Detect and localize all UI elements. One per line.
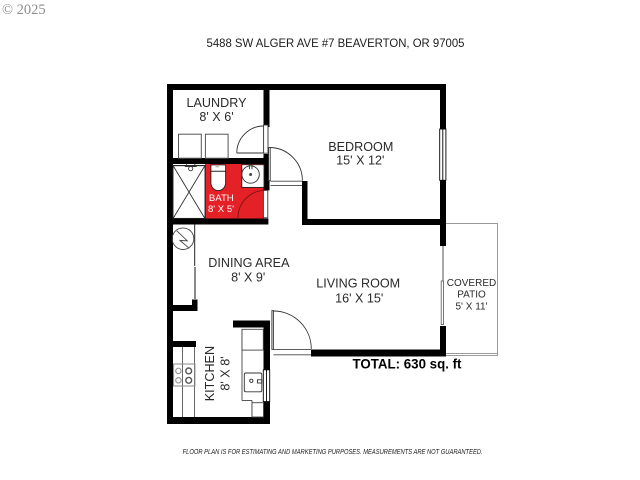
svg-text:BEDROOM: BEDROOM	[328, 140, 393, 154]
svg-text:LAUNDRY: LAUNDRY	[187, 96, 248, 110]
svg-text:8' X 9': 8' X 9'	[231, 270, 265, 284]
svg-text:COVERED: COVERED	[447, 278, 496, 289]
svg-text:FLOOR PLAN IS FOR ESTIMATING A: FLOOR PLAN IS FOR ESTIMATING AND MARKETI…	[183, 447, 483, 456]
svg-text:8' X 5': 8' X 5'	[208, 204, 234, 215]
svg-text:PATIO: PATIO	[457, 290, 486, 301]
svg-text:15' X 12': 15' X 12'	[336, 154, 384, 168]
svg-text:KITCHEN: KITCHEN	[203, 346, 217, 401]
svg-text:8' X 8': 8' X 8'	[219, 356, 233, 390]
svg-text:LIVING ROOM: LIVING ROOM	[316, 277, 400, 291]
svg-text:© 2025: © 2025	[2, 2, 46, 18]
svg-text:16' X 15': 16' X 15'	[335, 292, 383, 306]
svg-text:8' X 6': 8' X 6'	[199, 110, 233, 124]
svg-text:DINING AREA: DINING AREA	[208, 256, 290, 270]
svg-text:5' X 11': 5' X 11'	[456, 301, 488, 312]
svg-text:5488 SW ALGER AVE #7 BEAVERTON: 5488 SW ALGER AVE #7 BEAVERTON, OR 97005	[207, 36, 465, 50]
svg-text:TOTAL: 630 sq. ft: TOTAL: 630 sq. ft	[353, 356, 463, 371]
svg-text:BATH: BATH	[209, 193, 234, 204]
